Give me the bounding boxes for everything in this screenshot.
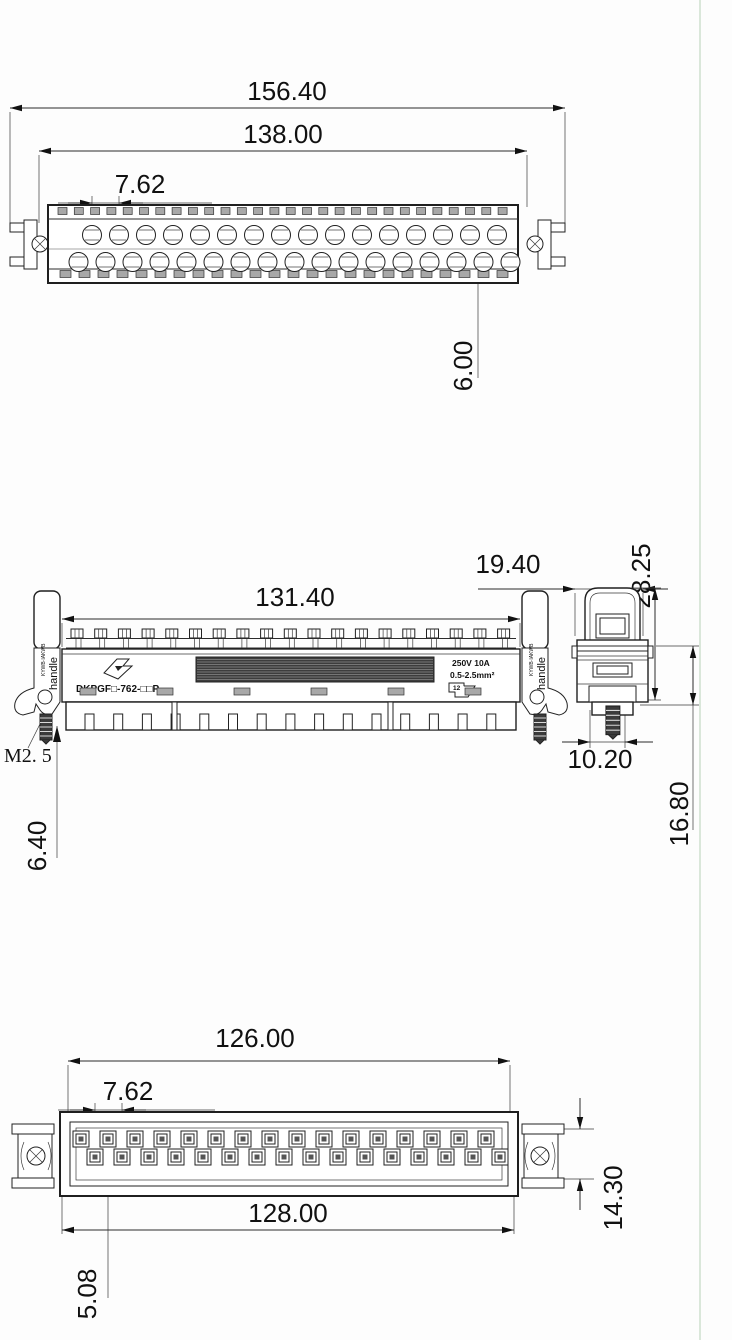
svg-text:131.40: 131.40 [255, 582, 335, 612]
connector-body-bottom [60, 1112, 518, 1196]
lever-handle-text: handle [536, 657, 548, 690]
solder-tab-row [85, 714, 496, 730]
svg-text:12: 12 [453, 685, 461, 692]
svg-text:138.00: 138.00 [243, 119, 323, 149]
connector-body-front: DKPGF□-762-□□P 250V 10A 0.5-2.5mm² 12 [62, 629, 520, 730]
dim-body-height-bottom: 14.30 [560, 1098, 628, 1231]
svg-text:128.00: 128.00 [248, 1198, 328, 1228]
locking-lever-right: KYWB·IAKWB handle [522, 591, 567, 744]
locking-lever-left: KYWB·IAKWB handle [15, 591, 60, 744]
side-view [572, 588, 653, 739]
lever-brand-text: KYWB·IAKWB [41, 643, 47, 676]
svg-text:M2. 5: M2. 5 [4, 745, 52, 767]
svg-text:6.00: 6.00 [448, 341, 478, 392]
mounting-bracket-left [10, 220, 48, 269]
tooth-tick-row [76, 639, 508, 648]
svg-text:19.40: 19.40 [475, 549, 540, 579]
dim-body-height-front: 16.80 [640, 646, 699, 847]
mounting-bracket-right-bottom [522, 1124, 564, 1188]
contact-teeth-row [71, 629, 510, 638]
svg-text:7.62: 7.62 [103, 1076, 154, 1106]
svg-text:14.30: 14.30 [598, 1165, 628, 1230]
bottom-view: 126.00 7.62 5.08 14.30 [12, 1023, 628, 1319]
top-view: 156.40 138.00 7.62 6.00 [10, 76, 565, 391]
mounting-bracket-left-bottom [12, 1124, 54, 1188]
label-band [196, 657, 434, 682]
lever-brand-text: KYWB·IAKWB [529, 643, 535, 676]
front-view: 131.40 19.40 28.25 16.80 [4, 543, 699, 871]
panel-screw [606, 706, 620, 739]
fixing-screw-right [534, 714, 546, 744]
svg-text:7.62: 7.62 [115, 169, 166, 199]
fixing-screw-left [40, 714, 52, 744]
rating-voltage-current: 250V 10A [452, 658, 490, 668]
svg-text:6.40: 6.40 [22, 821, 52, 872]
svg-text:5.08: 5.08 [72, 1269, 102, 1320]
technical-drawing: 156.40 138.00 7.62 6.00 [0, 0, 732, 1340]
connector-body-top [48, 205, 520, 283]
svg-text:156.40: 156.40 [247, 76, 327, 106]
lever-handle-text: handle [48, 657, 60, 690]
mounting-bracket-right [527, 220, 565, 269]
svg-text:10.20: 10.20 [567, 744, 632, 774]
rating-wire-range: 0.5-2.5mm² [450, 670, 495, 680]
pin-row-lower [69, 253, 520, 272]
dim-overall-width: 156.40 [10, 76, 565, 223]
svg-text:16.80: 16.80 [664, 781, 694, 846]
svg-text:126.00: 126.00 [215, 1023, 295, 1053]
